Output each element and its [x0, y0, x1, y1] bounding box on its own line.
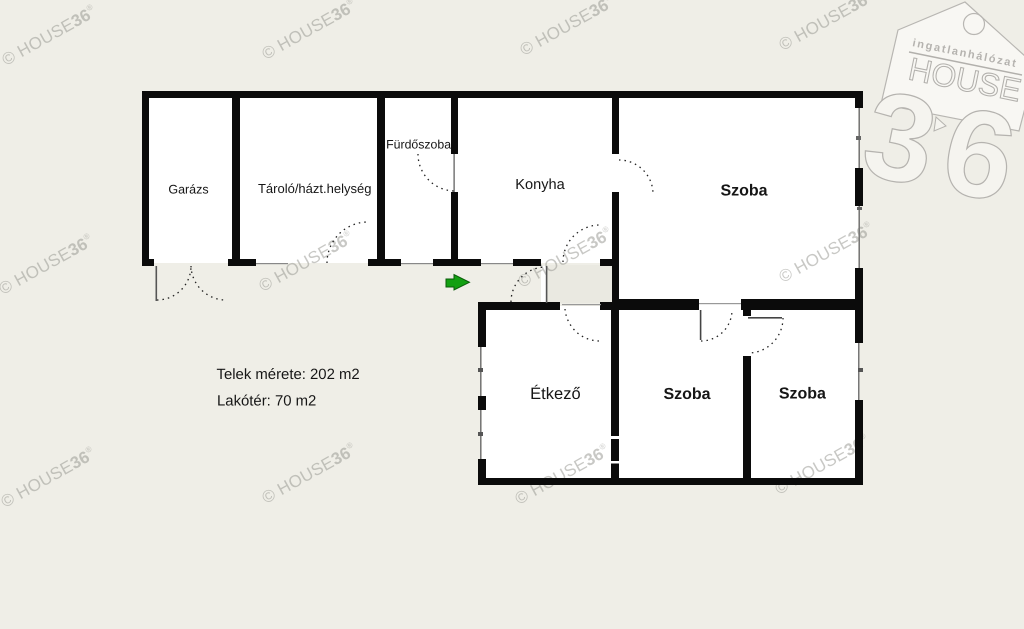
- svg-text:Szoba: Szoba: [720, 183, 767, 200]
- svg-text:Étkező: Étkező: [530, 384, 580, 403]
- svg-text:Lakótér: 70 m2: Lakótér: 70 m2: [217, 394, 316, 410]
- svg-text:Fürdőszoba: Fürdőszoba: [386, 138, 451, 152]
- svg-text:Szoba: Szoba: [663, 386, 710, 403]
- svg-text:Telek mérete: 202 m2: Telek mérete: 202 m2: [217, 367, 360, 383]
- svg-text:Garázs: Garázs: [168, 183, 208, 197]
- svg-text:Konyha: Konyha: [515, 177, 565, 193]
- svg-text:Tároló/házt.helység: Tároló/házt.helység: [258, 181, 371, 196]
- svg-text:Szoba: Szoba: [779, 386, 826, 403]
